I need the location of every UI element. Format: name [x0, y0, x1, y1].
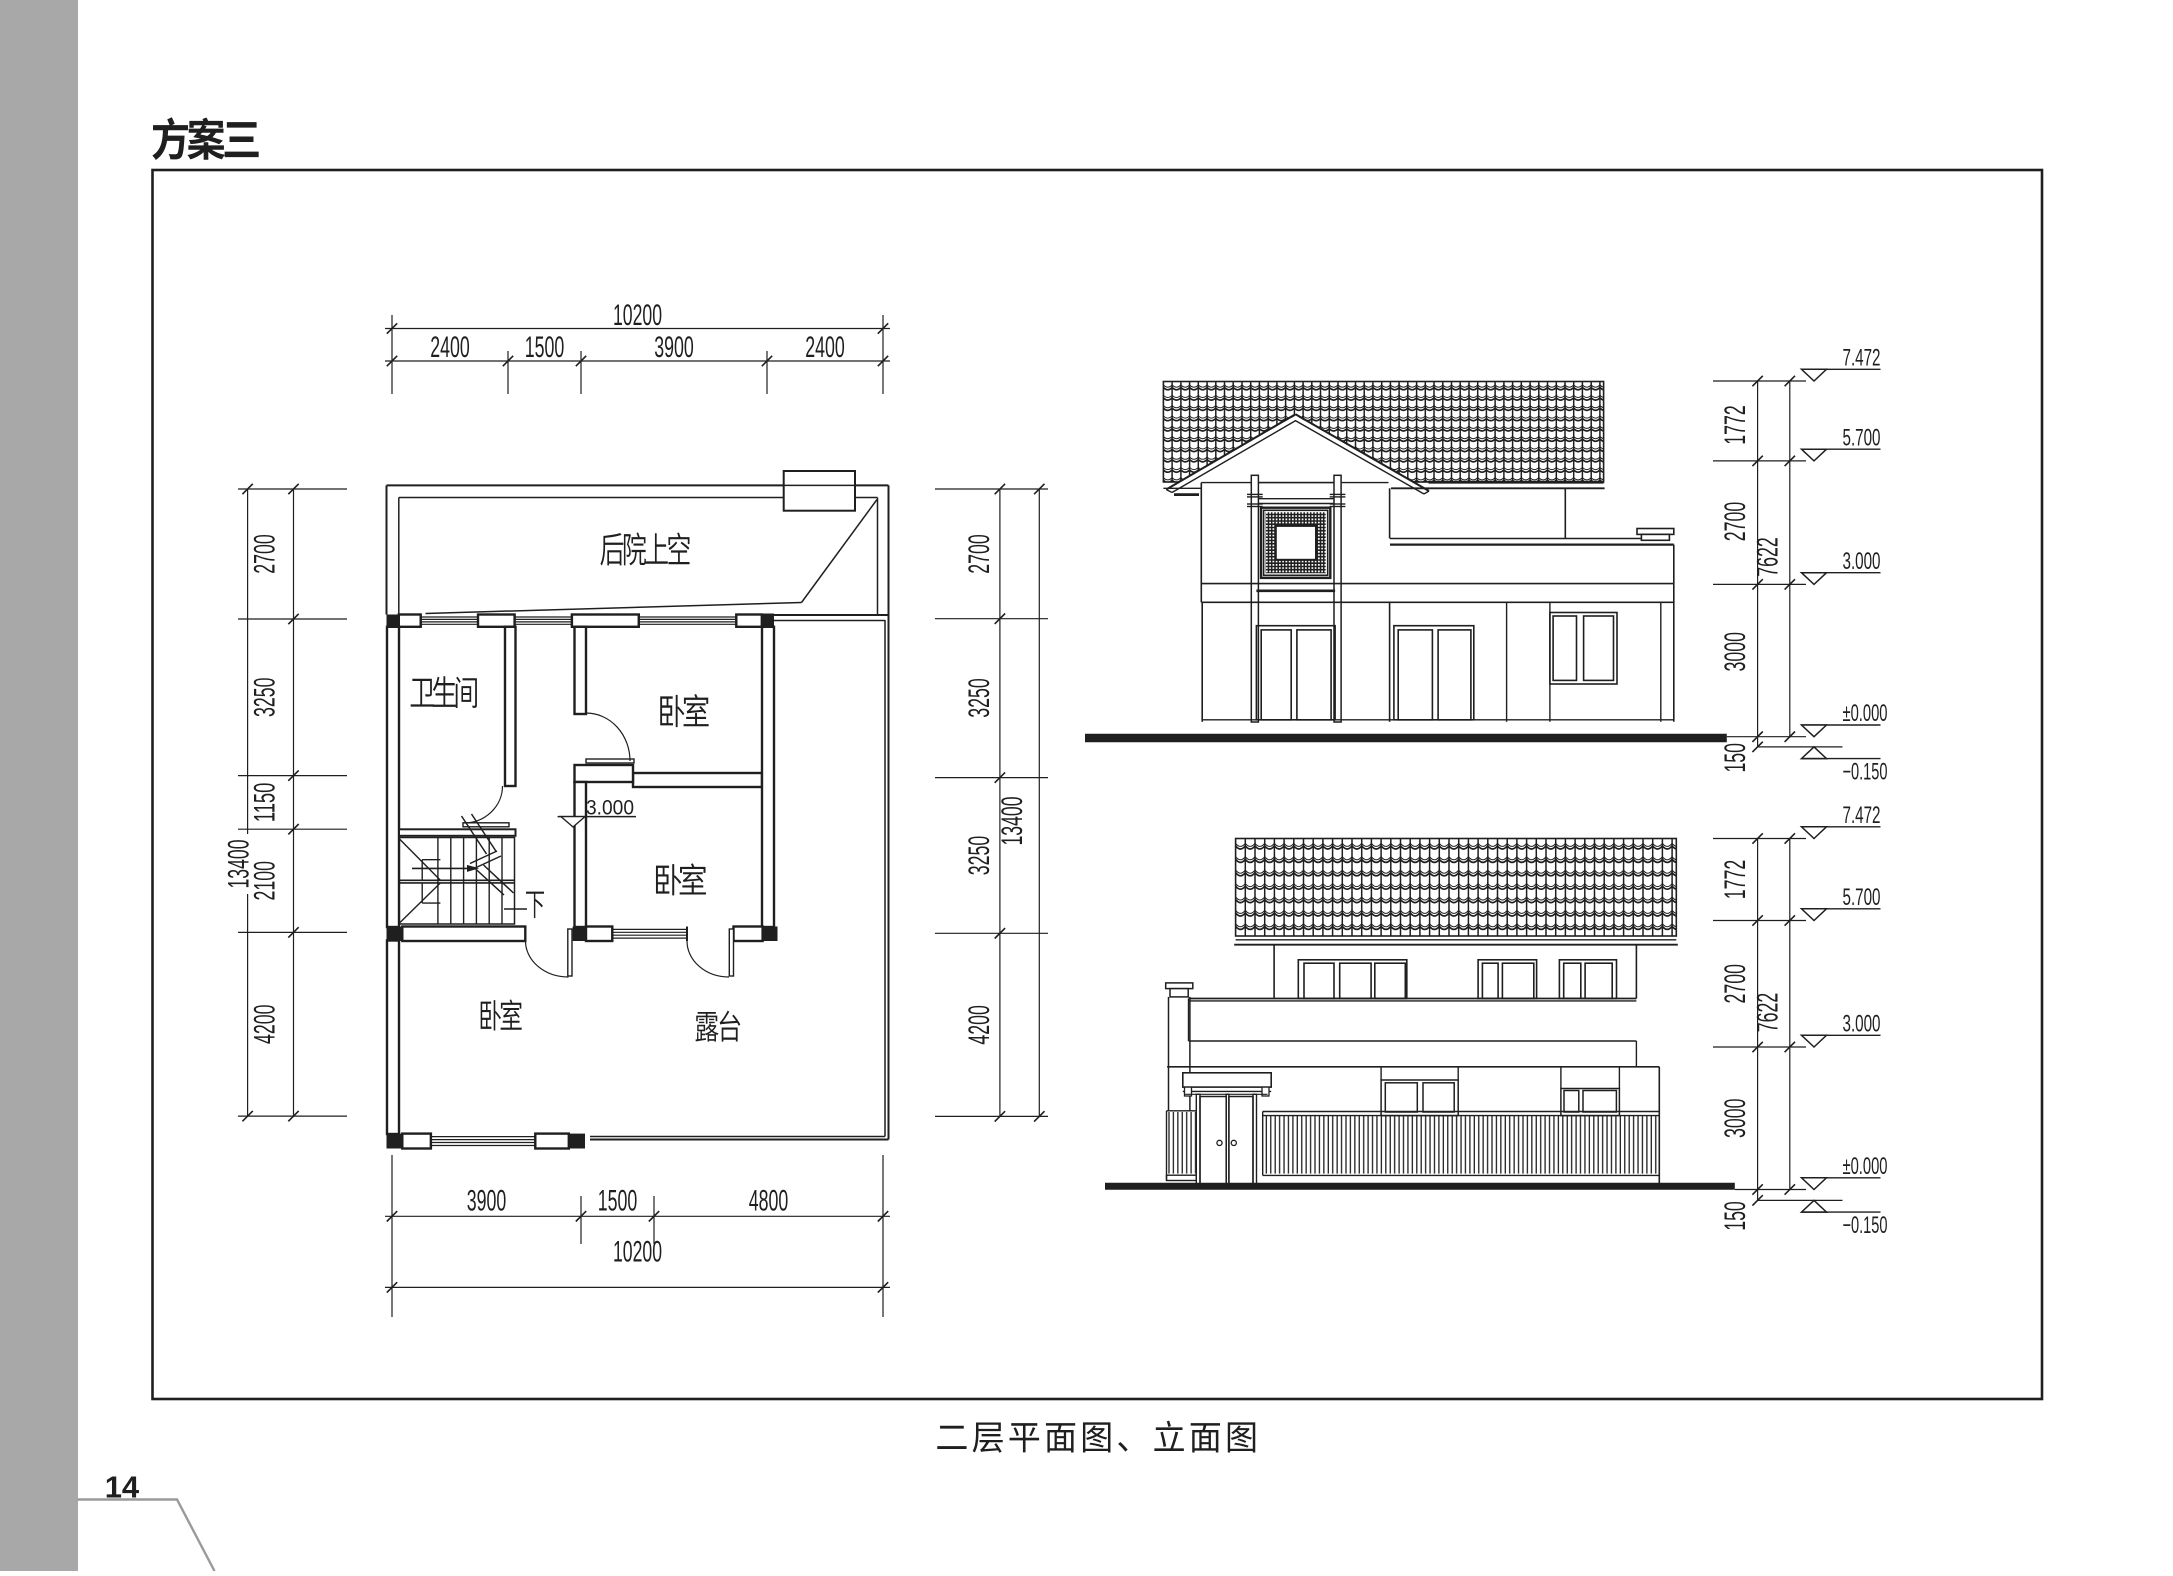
svg-text:−0.150: −0.150	[1843, 759, 1888, 786]
svg-text:4200: 4200	[963, 1005, 996, 1045]
svg-text:3250: 3250	[248, 678, 281, 718]
svg-text:3.000: 3.000	[1843, 548, 1881, 575]
svg-text:2700: 2700	[1719, 964, 1752, 1004]
svg-text:3900: 3900	[654, 331, 694, 364]
svg-text:1772: 1772	[1719, 405, 1752, 445]
svg-text:4200: 4200	[248, 1004, 281, 1044]
svg-text:±0.000: ±0.000	[1843, 700, 1888, 727]
svg-text:5.700: 5.700	[1843, 424, 1881, 451]
svg-text:10200: 10200	[613, 299, 662, 332]
svg-text:1150: 1150	[248, 783, 281, 823]
svg-text:±0.000: ±0.000	[1843, 1153, 1888, 1180]
svg-text:−0.150: −0.150	[1843, 1212, 1888, 1239]
svg-text:2400: 2400	[430, 331, 470, 364]
svg-text:7.472: 7.472	[1843, 345, 1881, 372]
svg-text:3000: 3000	[1719, 632, 1752, 672]
svg-text:3900: 3900	[467, 1185, 507, 1218]
svg-text:150: 150	[1719, 743, 1752, 773]
svg-text:2700: 2700	[963, 534, 996, 574]
svg-text:13400: 13400	[996, 797, 1029, 846]
svg-text:2400: 2400	[805, 331, 845, 364]
svg-text:3250: 3250	[963, 836, 996, 876]
svg-text:1500: 1500	[525, 331, 565, 364]
svg-text:150: 150	[1719, 1201, 1752, 1231]
svg-text:1500: 1500	[598, 1185, 638, 1218]
svg-text:7.472: 7.472	[1843, 802, 1881, 829]
svg-text:2700: 2700	[248, 534, 281, 574]
svg-text:4800: 4800	[749, 1185, 789, 1218]
svg-text:7622: 7622	[1751, 537, 1784, 577]
svg-text:3000: 3000	[1719, 1099, 1752, 1139]
svg-text:7622: 7622	[1751, 993, 1784, 1033]
svg-text:10200: 10200	[613, 1236, 662, 1269]
svg-text:1772: 1772	[1719, 860, 1752, 900]
svg-text:3.000: 3.000	[586, 796, 634, 820]
svg-text:3.000: 3.000	[1843, 1011, 1881, 1038]
svg-text:3250: 3250	[963, 678, 996, 718]
svg-text:5.700: 5.700	[1843, 884, 1881, 911]
svg-text:13400: 13400	[223, 840, 256, 889]
svg-text:2700: 2700	[1719, 502, 1752, 542]
